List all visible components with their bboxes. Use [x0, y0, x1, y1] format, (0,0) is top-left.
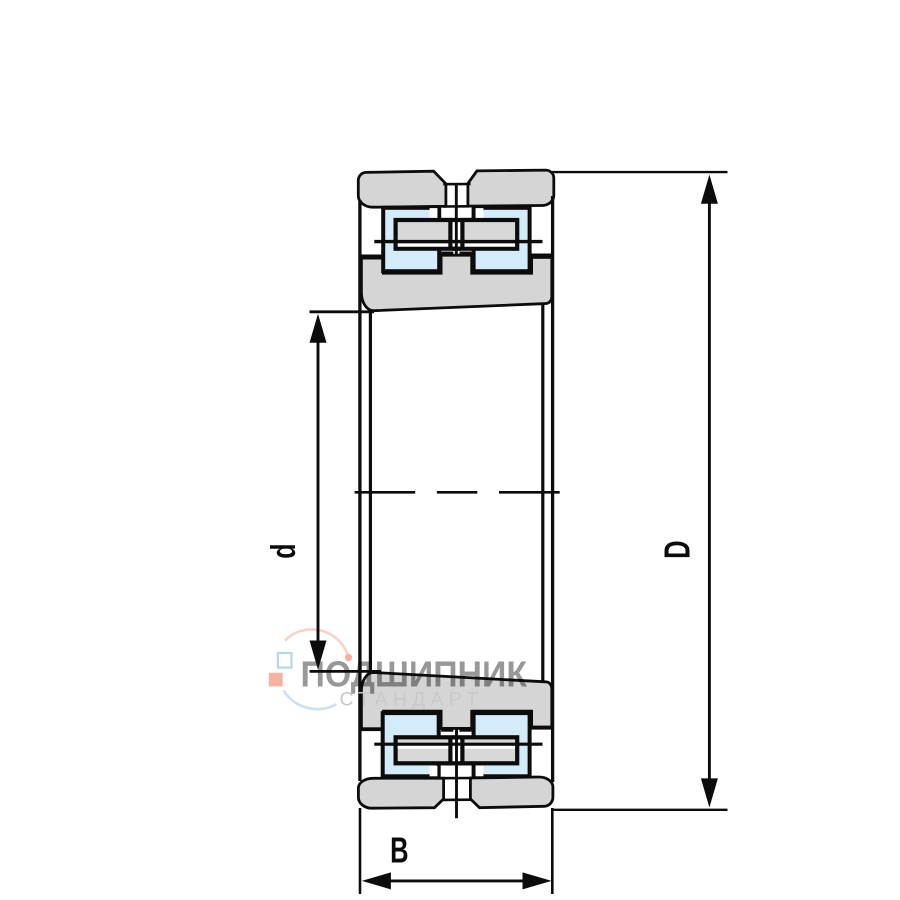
svg-text:B: B — [390, 829, 408, 871]
svg-text:D: D — [656, 540, 698, 558]
svg-text:d: d — [265, 544, 303, 559]
